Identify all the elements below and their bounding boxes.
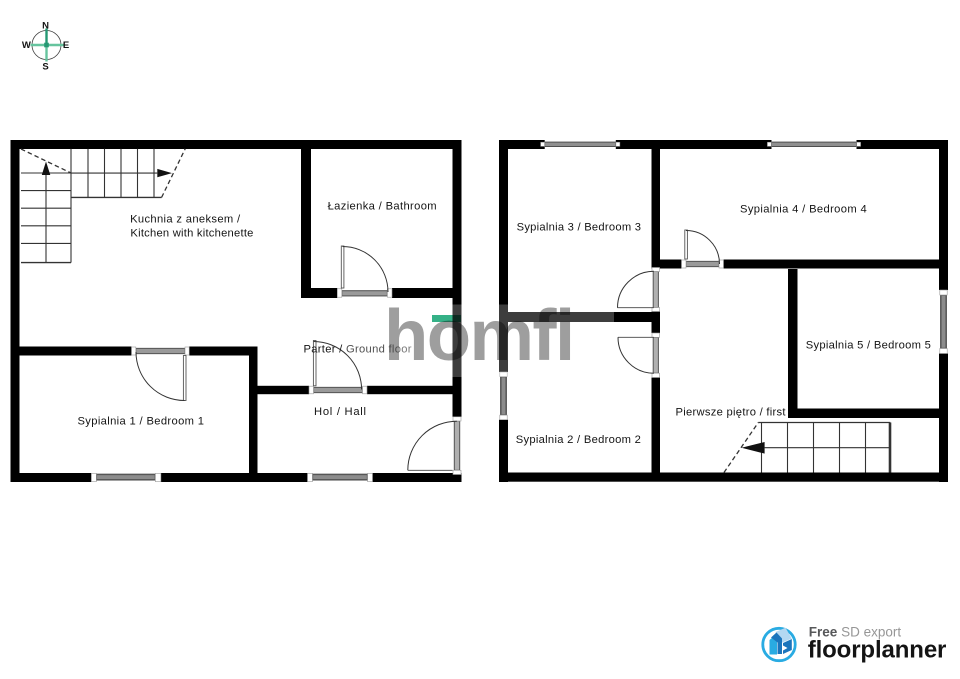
svg-text:Łazienka / Bathroom: Łazienka / Bathroom [328, 201, 437, 213]
svg-text:E: E [63, 40, 69, 51]
svg-text:Kuchnia z aneksem /: Kuchnia z aneksem / [130, 214, 241, 226]
svg-text:Kitchen with kitchenette: Kitchen with kitchenette [130, 228, 253, 240]
svg-text:floorplanner: floorplanner [808, 637, 947, 664]
svg-text:S: S [42, 61, 48, 72]
svg-text:W: W [22, 40, 31, 51]
svg-text:N: N [42, 20, 49, 31]
svg-text:Sypialnia 1 / Bedroom 1: Sypialnia 1 / Bedroom 1 [78, 415, 205, 427]
svg-text:Hol / Hall: Hol / Hall [314, 406, 366, 418]
svg-text:Pierwsze piętro / first: Pierwsze piętro / first [676, 407, 787, 419]
svg-text:Sypialnia 4 / Bedroom 4: Sypialnia 4 / Bedroom 4 [740, 204, 867, 216]
svg-text:Sypialnia 5 / Bedroom 5: Sypialnia 5 / Bedroom 5 [806, 340, 931, 352]
svg-text:Sypialnia 3 / Bedroom 3: Sypialnia 3 / Bedroom 3 [517, 222, 641, 234]
svg-text:Sypialnia 2 / Bedroom 2: Sypialnia 2 / Bedroom 2 [516, 434, 641, 446]
